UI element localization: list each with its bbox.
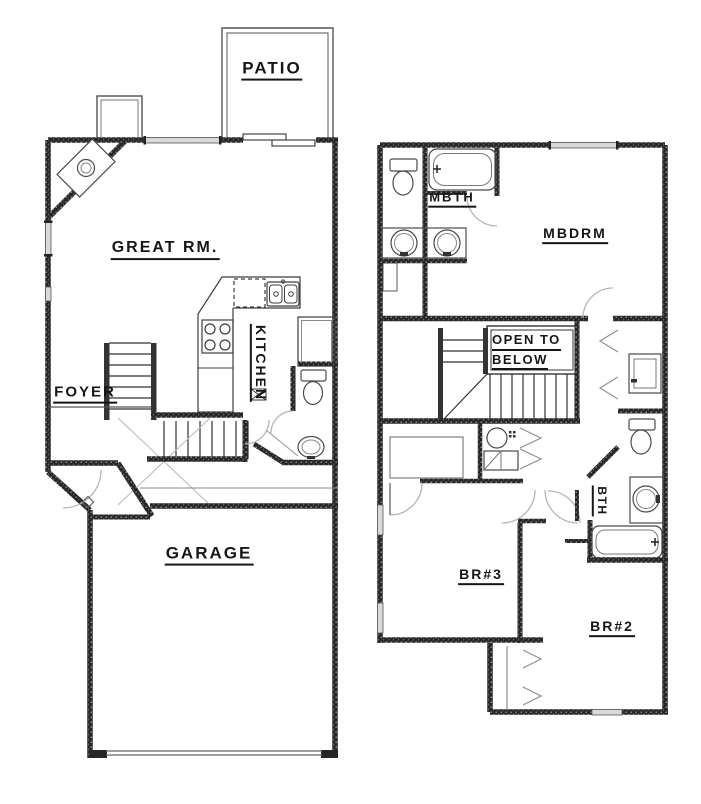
bifold-doors	[523, 650, 541, 705]
kitchen-sink	[267, 280, 299, 306]
hall-bath	[565, 419, 668, 560]
toilet-tank	[301, 370, 326, 381]
bifold-doors	[600, 330, 618, 399]
label-patio: PATIO	[241, 60, 302, 81]
bath-vanity	[630, 477, 663, 523]
label-great-rm: GREAT RM.	[111, 240, 220, 260]
walk-in-closet	[600, 330, 665, 411]
label-below: BELOW	[492, 351, 548, 371]
sliding-door	[243, 134, 315, 146]
label-br2: BR#2	[589, 619, 635, 637]
powder-door-swing	[271, 411, 293, 433]
toilet-bowl	[393, 171, 413, 195]
toilet-tank	[390, 159, 417, 171]
master-tub	[429, 149, 496, 190]
understair-door-swing	[245, 420, 269, 444]
hall-door-swings	[502, 490, 580, 523]
toilet-tank	[629, 419, 655, 430]
garage-walls	[90, 488, 338, 758]
label-open-to: OPEN TO	[492, 331, 561, 351]
laundry-closet	[390, 421, 541, 481]
utility-sink	[487, 428, 507, 448]
label-foyer: FOYER	[53, 385, 117, 404]
br2-closet	[507, 521, 546, 710]
label-mbth: MBTH	[428, 191, 476, 208]
patio-walls	[222, 28, 333, 140]
br3-closet-shelf	[390, 437, 463, 478]
refrigerator	[234, 279, 265, 307]
washer	[484, 451, 518, 470]
mbdrm-door-swing	[583, 288, 613, 318]
toilet-bowl	[304, 382, 323, 405]
label-br3: BR#3	[458, 567, 504, 585]
label-mbdrm: MBDRM	[542, 226, 608, 244]
master-bath	[380, 145, 497, 321]
toilet-bowl	[631, 430, 651, 454]
exterior-walls-floor1	[48, 140, 338, 758]
pantry-cabinet	[298, 317, 335, 366]
label-kitchen: KITCHEN	[250, 324, 268, 402]
staircase-floor1	[104, 343, 248, 505]
label-garage: GARAGE	[165, 545, 254, 566]
label-bth: BTH	[592, 485, 608, 516]
br3-door	[390, 483, 422, 515]
linen-closet	[383, 263, 397, 291]
garage-door	[106, 751, 322, 755]
chimney	[97, 96, 142, 141]
label-open-to-below: OPEN TO BELOW	[492, 331, 574, 370]
hall-tub	[592, 526, 662, 558]
floor-plan-canvas: PATIO GREAT RM. KITCHEN FOYER GARAGE MBT…	[0, 0, 701, 804]
bifold-doors	[520, 428, 541, 469]
faucet-mark	[509, 431, 516, 438]
fireplace	[48, 139, 126, 218]
